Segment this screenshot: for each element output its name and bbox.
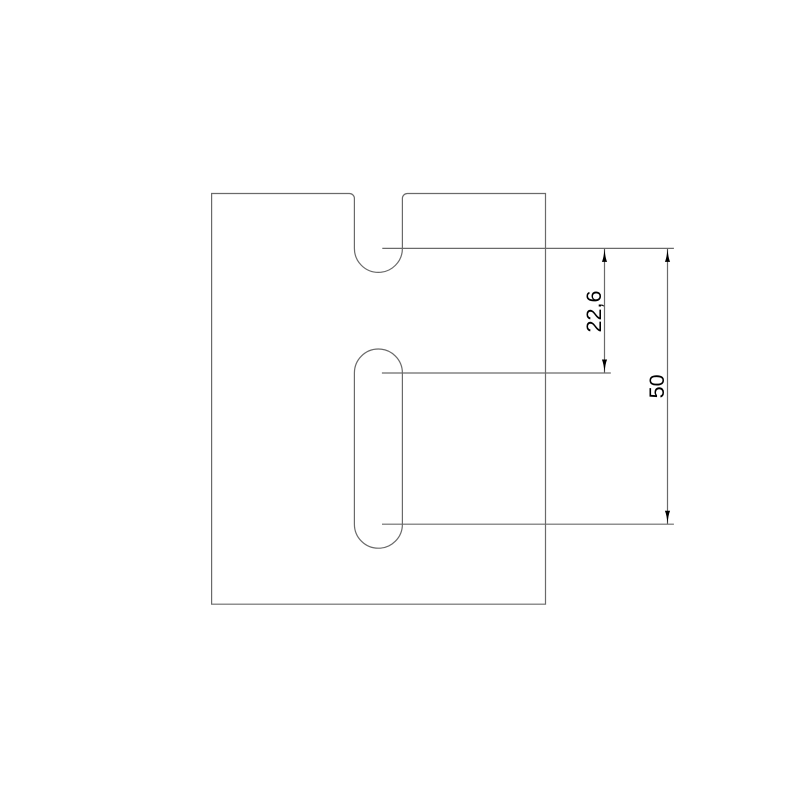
svg-text:50: 50: [644, 374, 669, 398]
svg-text:22,6: 22,6: [581, 290, 606, 332]
